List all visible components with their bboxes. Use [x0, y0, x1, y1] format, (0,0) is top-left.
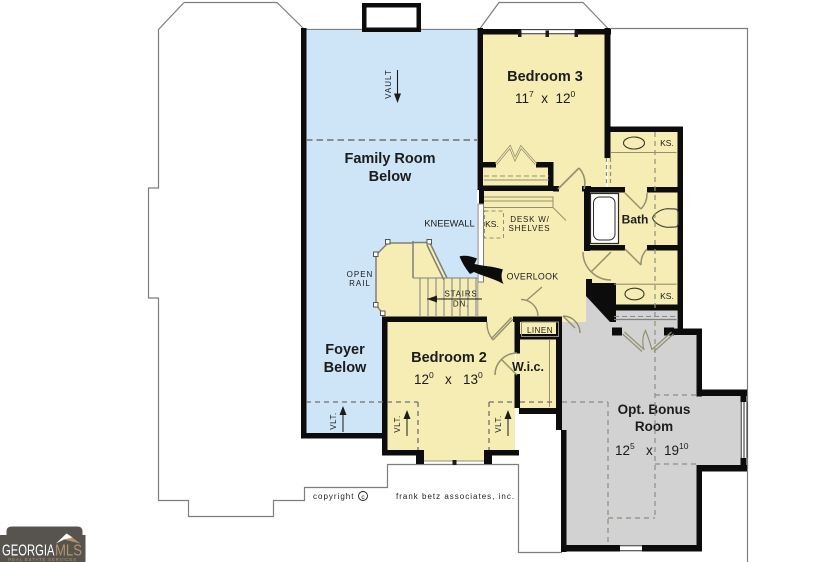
svg-text:Room: Room [635, 419, 673, 434]
svg-text:DESK W/: DESK W/ [510, 215, 549, 224]
svg-text:frank betz associates, inc.: frank betz associates, inc. [396, 492, 515, 501]
svg-text:VAULT: VAULT [384, 69, 393, 99]
svg-text:KNEEWALL: KNEEWALL [424, 219, 474, 229]
svg-text:Opt. Bonus: Opt. Bonus [618, 402, 691, 417]
svg-text:OPEN: OPEN [347, 270, 374, 279]
svg-text:125 x 1910: 125 x 1910 [615, 441, 689, 458]
svg-text:RAIL: RAIL [349, 279, 371, 288]
svg-text:VLT.: VLT. [494, 415, 503, 432]
svg-text:Bath: Bath [622, 213, 649, 227]
svg-text:copyright: copyright [313, 492, 354, 501]
svg-text:120 x 130: 120 x 130 [414, 370, 483, 387]
svg-text:REAL ESTATE SERVICES: REAL ESTATE SERVICES [8, 557, 77, 562]
svg-text:Bedroom 3: Bedroom 3 [507, 69, 583, 85]
svg-text:Bedroom 2: Bedroom 2 [411, 350, 487, 366]
svg-text:KS.: KS. [660, 291, 674, 301]
svg-text:Foyer: Foyer [325, 342, 365, 358]
svg-text:SHELVES: SHELVES [509, 224, 551, 233]
svg-text:Below: Below [324, 360, 367, 376]
svg-text:VLT.: VLT. [393, 415, 402, 432]
svg-text:VLT.: VLT. [329, 412, 338, 429]
svg-text:Family Room: Family Room [344, 151, 435, 167]
svg-text:STAIRS: STAIRS [444, 290, 477, 299]
svg-text:W.i.c.: W.i.c. [512, 360, 544, 374]
svg-text:LINEN: LINEN [527, 326, 553, 335]
svg-text:Below: Below [369, 169, 412, 185]
svg-text:KS.: KS. [485, 219, 499, 229]
svg-text:KS.: KS. [660, 138, 674, 148]
svg-text:DN.: DN. [453, 300, 469, 309]
svg-text:OVERLOOK: OVERLOOK [507, 272, 559, 282]
svg-text:117 x 120: 117 x 120 [515, 89, 576, 106]
